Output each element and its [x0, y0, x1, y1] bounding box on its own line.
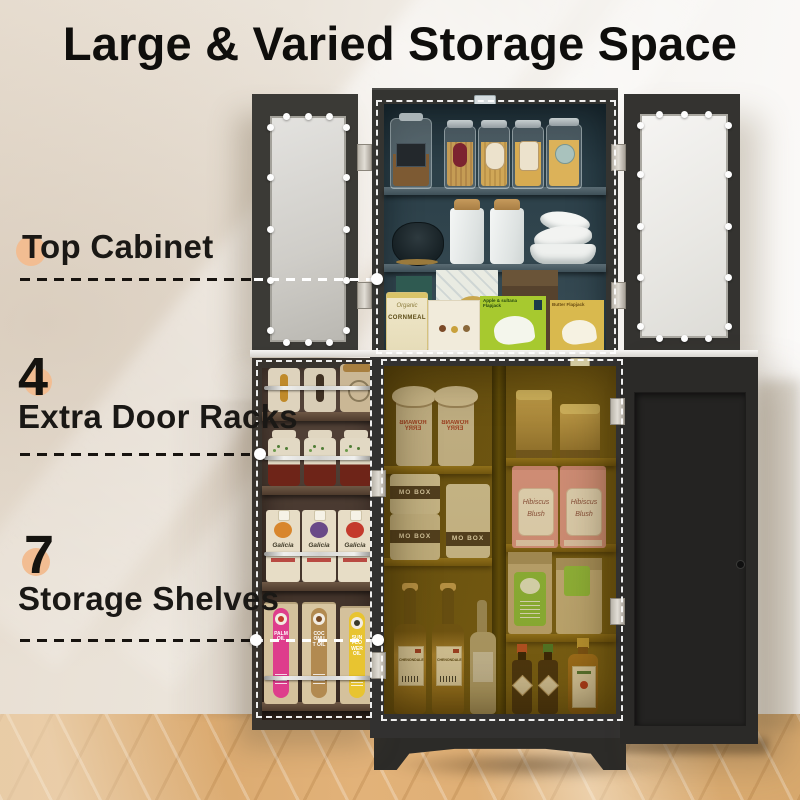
- tin-lid: [343, 364, 371, 372]
- rack-rail: [264, 456, 374, 460]
- bottle-body: [538, 660, 558, 714]
- label-panel: Hibiscus Blush: [518, 488, 554, 536]
- bottle-neck: [404, 588, 416, 628]
- jar-label: [453, 143, 467, 167]
- jar-body: [268, 438, 300, 486]
- cabinet-top-edge: [250, 350, 758, 357]
- cloth-cover: [434, 386, 478, 406]
- rowanberry-text: ROWANBERRY: [398, 420, 428, 433]
- bottle-body: [470, 632, 496, 714]
- mo-box-text: MO BOX: [446, 532, 490, 546]
- tin-base: [560, 450, 600, 458]
- leader-line-top-cabinet: [20, 278, 252, 281]
- mo-box-canister: MO BOX: [446, 484, 490, 558]
- stamp-label: [348, 380, 370, 402]
- cork-lid: [454, 199, 480, 210]
- fruit-dot: [354, 620, 360, 626]
- box-band: [502, 270, 558, 286]
- stud-dot: [267, 226, 274, 233]
- stud-dot: [725, 323, 732, 330]
- jar-label: [396, 143, 426, 167]
- hibiscus-text-2: Blush: [519, 511, 553, 519]
- label-fineprint: [520, 600, 540, 618]
- green-label: [564, 566, 590, 596]
- hinge: [611, 282, 626, 309]
- label-flag: [453, 649, 459, 653]
- label-panel: Hibiscus Blush: [566, 488, 602, 536]
- oil-label: SUN FLOWER OIL: [349, 612, 365, 698]
- top-left-door: [252, 94, 358, 352]
- stud-dot: [705, 111, 712, 118]
- can-stripe: [387, 293, 427, 298]
- page-title: Large & Varied Storage Space: [0, 16, 800, 71]
- label-oval: [520, 578, 540, 594]
- label-art: [277, 445, 280, 448]
- leader-line-top-cabinet-highlight: [254, 278, 374, 281]
- wine-bottle: CHENONDALE: [394, 586, 426, 714]
- juice-carton: Galicia: [302, 510, 336, 582]
- stud-dot: [681, 111, 688, 118]
- wall-shadow: [168, 400, 254, 718]
- jar-label: [519, 141, 539, 171]
- hinge: [611, 144, 626, 171]
- rack-rail: [264, 552, 374, 556]
- nut-illustrations: [439, 325, 446, 332]
- bird-illustration: [492, 313, 536, 346]
- spice-tin: [304, 368, 336, 412]
- jar-lid: [447, 120, 473, 128]
- wine-name-text: CHENONDALE: [399, 659, 423, 663]
- stud-dot: [725, 223, 732, 230]
- label-line: [343, 558, 367, 562]
- hibiscus-tea-box: Hibiscus Blush: [512, 466, 558, 548]
- jam-jar: ROWANBERRY: [396, 392, 432, 466]
- stud-dot: [283, 113, 290, 120]
- diamond-label: [512, 675, 533, 696]
- kraft-packet: [556, 558, 602, 634]
- tin-base: [516, 450, 552, 458]
- stud-dot: [305, 339, 312, 346]
- gold-tin: [560, 404, 600, 458]
- rack-rail: [264, 386, 374, 390]
- hibiscus-text-1: Hibiscus: [519, 499, 553, 507]
- jar-label: [555, 144, 575, 164]
- oil-carton-sunflower: SUN FLOWER OIL: [340, 606, 374, 704]
- leader-endpoint: [254, 448, 266, 460]
- door-knob: [736, 560, 745, 569]
- wine-label: CHENONDALE: [436, 646, 462, 686]
- barcode: [440, 676, 458, 682]
- callout-door-racks-number: 4: [18, 350, 48, 404]
- callout-door-racks-label: Extra Door Racks: [18, 398, 298, 436]
- juice-carton: Galicia: [338, 510, 372, 582]
- jar-lid: [515, 120, 541, 128]
- mo-box-text: MO BOX: [390, 530, 440, 543]
- stud-dot: [305, 113, 312, 120]
- cloth-cover: [392, 386, 436, 406]
- hibiscus-tea-box: Hibiscus Blush: [560, 466, 606, 548]
- carton-cap: [314, 510, 326, 521]
- cornmeal-can: Organic CORNMEAL: [386, 292, 428, 352]
- green-label: [514, 572, 546, 626]
- jar-label: [485, 142, 505, 170]
- wine-label: [473, 652, 493, 682]
- top-right-door: [624, 94, 740, 352]
- gold-tin: [516, 390, 552, 458]
- label-flag: [415, 649, 421, 653]
- stud-dot: [343, 327, 350, 334]
- door-wall-shadow: [756, 380, 800, 730]
- oil-label: PALM OIL: [273, 608, 289, 698]
- jar-body: [304, 438, 336, 486]
- stud-dot: [656, 335, 663, 342]
- flapjack-yellow-text: Butter Flapjack: [552, 303, 592, 308]
- cornmeal-label-text: CORNMEAL: [387, 315, 427, 321]
- kraft-packet: [508, 552, 552, 634]
- bowl-stack: [530, 210, 596, 264]
- stud-dot: [267, 174, 274, 181]
- bottle-body: CHENONDALE: [394, 624, 426, 714]
- jar-body: [340, 438, 372, 486]
- bird-illustration: [560, 318, 597, 346]
- pasta-jar: [512, 126, 544, 189]
- fruit-icon: [351, 617, 363, 629]
- door-rack-shelf: [262, 486, 376, 495]
- bottle-body: [568, 654, 598, 714]
- mo-box-canister: MO BOX: [390, 514, 440, 560]
- jam-jar: ROWANBERRY: [438, 392, 474, 466]
- label-line: [307, 558, 331, 562]
- diamond-label: [538, 675, 559, 696]
- pantry-shelf: [506, 458, 616, 466]
- callout-shelves-number: 7: [24, 528, 54, 582]
- pantry-shelf: [384, 466, 492, 474]
- ketchup-label: [572, 666, 596, 708]
- galicia-text: Galicia: [266, 542, 300, 549]
- tomato-icon: [580, 681, 588, 689]
- hinge: [371, 652, 386, 679]
- stud-dot: [637, 323, 644, 330]
- jar-lid: [481, 120, 507, 128]
- stud-dot: [705, 335, 712, 342]
- wine-bottle: CHENONDALE: [432, 586, 464, 714]
- pasta-jar: [444, 126, 476, 189]
- stud-dot: [725, 171, 732, 178]
- mo-box-canister: MO BOX: [390, 474, 440, 514]
- stud-dot: [637, 171, 644, 178]
- white-canister: [490, 208, 524, 264]
- nuts-card: [428, 300, 480, 352]
- barcode: [402, 676, 420, 682]
- stud-dot: [283, 339, 290, 346]
- hibiscus-text-1: Hibiscus: [567, 499, 601, 507]
- leader-endpoint: [250, 634, 262, 646]
- stud-dot: [637, 122, 644, 129]
- leader-line-shelves-highlight: [254, 639, 376, 642]
- lower-cabinet-interior: ROWANBERRY ROWANBERRY MO BOX MO BOX MO B…: [384, 366, 616, 714]
- mo-box-text: MO BOX: [390, 486, 440, 499]
- carton-cap: [278, 510, 290, 521]
- stud-dot: [267, 124, 274, 131]
- tin-lid: [560, 404, 600, 414]
- leader-endpoint: [372, 634, 384, 646]
- oil-label: COCONUT OIL: [311, 608, 327, 698]
- pantry-shelf: [506, 634, 616, 642]
- leader-endpoint: [371, 273, 383, 285]
- fruit-art: [310, 522, 328, 538]
- fruit-icon: [313, 613, 325, 625]
- bottle-body: CHENONDALE: [432, 624, 464, 714]
- lower-cabinet-body: ROWANBERRY ROWANBERRY MO BOX MO BOX MO B…: [370, 354, 630, 738]
- stud-dot: [326, 113, 333, 120]
- stud-dot: [725, 274, 732, 281]
- stud-dot: [267, 327, 274, 334]
- lower-right-door: [620, 356, 758, 744]
- rowanberry-text: ROWANBERRY: [440, 420, 470, 433]
- cornmeal-brand-text: Organic: [387, 303, 427, 309]
- jar-lid: [549, 118, 579, 126]
- bottle-neck: [477, 600, 487, 636]
- label-line: [577, 671, 591, 674]
- stud-dot: [343, 124, 350, 131]
- packet-fold: [508, 552, 552, 564]
- fruit-art: [274, 522, 292, 538]
- stud-dot: [326, 339, 333, 346]
- stud-dot: [725, 122, 732, 129]
- white-canister: [450, 208, 484, 264]
- galicia-text: Galicia: [302, 542, 336, 549]
- hinge: [371, 470, 386, 497]
- hot-sauce-bottle: [538, 644, 558, 714]
- hinge: [357, 144, 372, 171]
- fruit-dot: [316, 616, 322, 622]
- flapjack-box-green: Apple & sultana Flapjack: [480, 296, 546, 350]
- top-cabinet-interior: Organic CORNMEAL Apple & sultana Flapjac…: [384, 104, 606, 350]
- hibiscus-text-2: Blush: [567, 511, 601, 519]
- cork-lid: [494, 199, 520, 210]
- ketchup-bottle: [568, 638, 598, 714]
- callout-top-cabinet-label: Top Cabinet: [22, 228, 214, 266]
- wine-bottle-pale: [470, 600, 496, 714]
- callout-shelves-label: Storage Shelves: [18, 580, 279, 618]
- bowl: [530, 244, 596, 264]
- bottle-body: [512, 660, 532, 714]
- wine-label: CHENONDALE: [398, 646, 424, 686]
- door-recessed-panel: [634, 392, 746, 726]
- box-band: [516, 540, 554, 546]
- hot-sauce-bottle: [512, 644, 532, 714]
- leader-line-door-racks: [20, 453, 250, 456]
- label-art: [313, 445, 316, 448]
- frosted-glass-pane: [270, 116, 346, 342]
- stud-dot: [343, 174, 350, 181]
- carton-cap: [350, 510, 362, 521]
- hinge: [610, 398, 625, 425]
- fruit-art: [346, 522, 364, 538]
- oil-carton-coconut: COCONUT OIL: [302, 602, 336, 704]
- label-line: [271, 558, 295, 562]
- fairtrade-mark: [534, 300, 542, 310]
- hinge: [610, 598, 625, 625]
- top-cabinet-body: Organic CORNMEAL Apple & sultana Flapjac…: [372, 88, 618, 356]
- clip-top-jar: [390, 118, 432, 189]
- stud-dot: [681, 335, 688, 342]
- wine-name-text: CHENONDALE: [437, 659, 461, 663]
- label-art: [349, 445, 352, 448]
- stud-dot: [637, 223, 644, 230]
- gold-saucer: [396, 259, 438, 265]
- pasta-jar: [478, 126, 510, 189]
- leader-line-shelves: [20, 639, 250, 642]
- galicia-text: Galicia: [338, 542, 372, 549]
- box-band: [564, 540, 602, 546]
- rack-rail: [264, 676, 374, 680]
- stud-dot: [656, 111, 663, 118]
- juice-carton: Galicia: [266, 510, 300, 582]
- stud-dot: [637, 274, 644, 281]
- frosted-glass-pane: [640, 114, 728, 338]
- flapjack-box-yellow: Butter Flapjack: [550, 300, 604, 350]
- stud-dot: [343, 226, 350, 233]
- pasta-jar: [546, 124, 582, 189]
- product-scene: Large & Varied Storage Space: [0, 0, 800, 800]
- flapjack-green-text: Apple & sultana Flapjack: [483, 299, 525, 309]
- tin-lid: [516, 390, 552, 400]
- hinge: [357, 282, 372, 309]
- jar-lid: [399, 113, 423, 121]
- bottle-neck: [442, 588, 454, 628]
